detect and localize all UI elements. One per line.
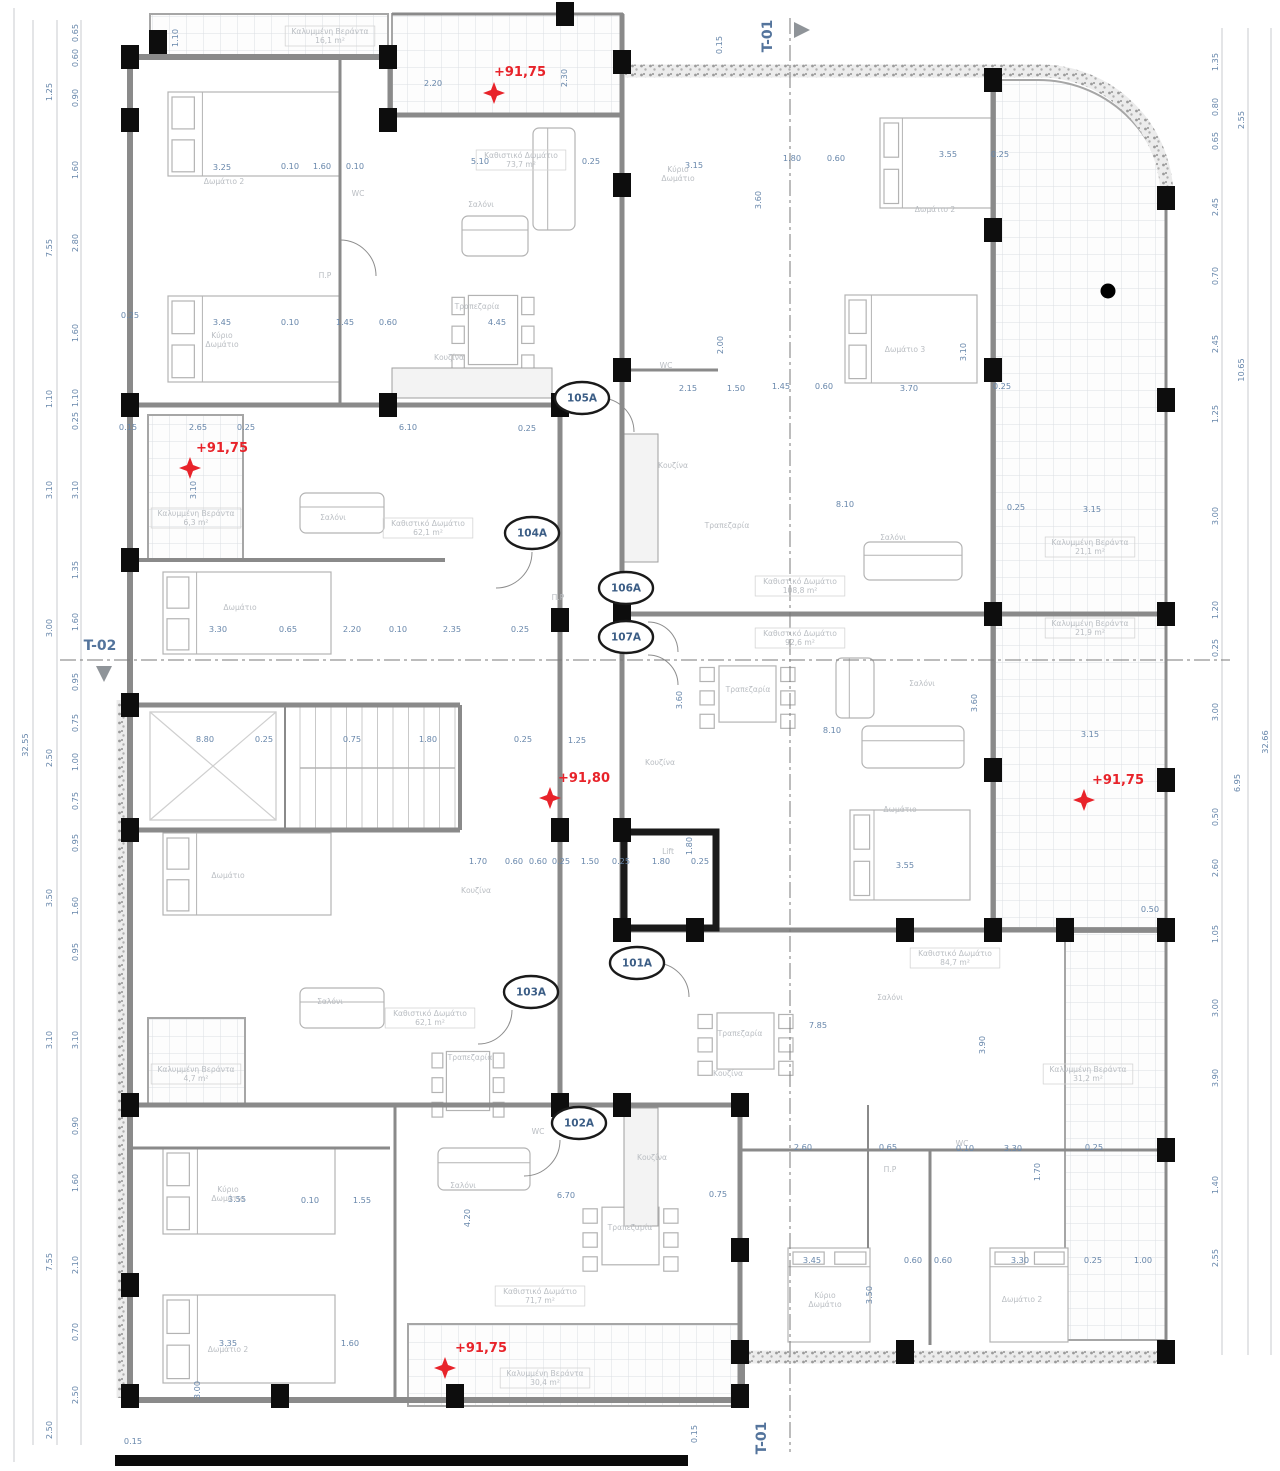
dimension-label: 1.25: [44, 83, 54, 101]
dimension-label: 1.00: [1134, 1255, 1152, 1265]
bed: [845, 295, 977, 383]
door-swing-arc: [496, 552, 532, 588]
dimension-label: 4.20: [462, 1209, 472, 1227]
dimension-label: 1.25: [568, 735, 586, 745]
unit-label: 107A: [611, 632, 642, 644]
dimension-label: 0.25: [121, 310, 139, 320]
dimension-label: 1.45: [772, 381, 790, 391]
structural-column: [984, 68, 1002, 92]
dimension-label: 2.15: [679, 383, 697, 393]
structural-column: [551, 818, 569, 842]
dimension-label: 32.66: [1260, 730, 1270, 753]
room-label: Καλυμμένη Βεράντα: [1049, 1065, 1126, 1074]
structural-column: [1157, 768, 1175, 792]
room-label: WC: [532, 1127, 545, 1136]
dimension-label: 1.70: [1032, 1163, 1042, 1181]
room-label: Τραπεζαρία: [607, 1223, 653, 1232]
dimension-label: 1.80: [783, 153, 801, 163]
dimension-label: 3.60: [674, 691, 684, 709]
structural-column: [984, 358, 1002, 382]
dimension-label: 0.70: [70, 1323, 80, 1341]
door-swing-arc: [340, 240, 376, 276]
structural-column: [984, 918, 1002, 942]
dimension-label: 2.45: [1210, 335, 1220, 353]
dimension-label: 1.60: [313, 161, 331, 171]
dimension-label: 0.60: [529, 856, 547, 866]
floor-plan-svg: 32.551.257.551.103.103.002.503.503.107.5…: [0, 0, 1280, 1471]
dimension-label: 0.25: [70, 412, 80, 430]
dimension-label: 0.95: [70, 673, 80, 691]
dimension-label: 6.95: [1232, 774, 1242, 792]
dimension-label: 0.25: [582, 156, 600, 166]
room-label: Δωμάτιο: [808, 1300, 842, 1309]
room-area-label: 21,9 m²: [1075, 628, 1105, 637]
dining-table: [700, 666, 795, 728]
structural-column: [896, 918, 914, 942]
unit-label: 103A: [516, 987, 547, 999]
dimension-label: 1.40: [1210, 1176, 1220, 1194]
room-label: Καλυμμένη Βεράντα: [157, 509, 234, 518]
structural-column: [271, 1384, 289, 1408]
dimension-label: 1.45: [336, 317, 354, 327]
room-label: Σαλόνι: [317, 997, 343, 1006]
dimension-label: 3.60: [753, 191, 763, 209]
dimension-label: 7.55: [44, 1253, 54, 1271]
room-label: Σαλόνι: [468, 200, 494, 209]
structural-column: [379, 45, 397, 69]
dimension-label: 1.80: [684, 837, 694, 855]
structural-column: [613, 50, 631, 74]
room-area-label: 6,3 m²: [184, 518, 209, 527]
room-area-label: 31,2 m²: [1073, 1074, 1103, 1083]
room-label: Δωμάτιο: [223, 603, 257, 612]
bed: [850, 810, 970, 900]
dimension-label: 3.15: [1081, 729, 1099, 739]
dimension-label: 7.85: [809, 1020, 827, 1030]
dimension-label: 3.10: [188, 481, 198, 499]
dimension-label: 0.50: [1210, 808, 1220, 826]
dimension-label: 0.10: [281, 161, 299, 171]
dimension-label: 2.60: [794, 1142, 812, 1152]
dimension-label: 2.80: [70, 234, 80, 252]
dimension-label: 0.90: [70, 89, 80, 107]
room-label: Καθιστικό Δωμάτιο: [484, 151, 558, 160]
elevation-label: +91,75: [196, 441, 248, 456]
dimension-label: 0.60: [379, 317, 397, 327]
sofa: [300, 988, 384, 1028]
room-label: Κουζίνα: [434, 353, 464, 362]
dimension-label: 0.60: [505, 856, 523, 866]
dimension-label: 32.55: [20, 733, 30, 756]
dimension-label: 0.75: [70, 714, 80, 732]
room-label: Τραπεζαρία: [717, 1029, 763, 1038]
dimension-label: 1.20: [1210, 601, 1220, 619]
structural-column: [121, 548, 139, 572]
dimension-label: 0.95: [70, 943, 80, 961]
dimension-label: 2.20: [424, 78, 442, 88]
dimension-label: 0.25: [518, 423, 536, 433]
structural-column: [121, 1093, 139, 1117]
dimension-label: 1.00: [70, 753, 80, 771]
room-label: Σαλόνι: [909, 679, 935, 688]
dimension-label: 2.60: [1210, 859, 1220, 877]
dimension-label: 1.50: [727, 383, 745, 393]
dimension-label: 1.35: [70, 561, 80, 579]
dimension-label: 2.55: [1236, 111, 1246, 129]
structural-column: [121, 693, 139, 717]
kitchen-counter: [624, 434, 658, 562]
room-label: Τραπεζαρία: [454, 302, 500, 311]
dimension-label: 0.25: [552, 856, 570, 866]
kitchen-counter: [624, 1108, 658, 1226]
dimension-label: 1.60: [70, 613, 80, 631]
room-label: Κύριο: [211, 331, 233, 340]
dimension-label: 1.50: [581, 856, 599, 866]
elevation-label: +91,80: [558, 771, 610, 786]
dimension-label: 0.90: [70, 1117, 80, 1135]
dimension-label: 7.55: [44, 239, 54, 257]
dimension-label: 1.35: [1210, 53, 1220, 71]
dimension-label: 3.00: [1210, 999, 1220, 1017]
dimension-label: 2.55: [1210, 1249, 1220, 1267]
structural-column: [613, 358, 631, 382]
structural-column: [1157, 388, 1175, 412]
dimension-label: 0.80: [1210, 98, 1220, 116]
room-label: WC: [352, 189, 365, 198]
dimension-label: 1.60: [341, 1338, 359, 1348]
dimension-label: 3.45: [213, 317, 231, 327]
dimension-label: 6.10: [399, 422, 417, 432]
structural-column: [446, 1384, 464, 1408]
structural-column: [613, 818, 631, 842]
dimension-label: 4.45: [488, 317, 506, 327]
dimension-label: 3.10: [70, 481, 80, 499]
sofa: [533, 128, 575, 230]
dimension-label: 3.10: [44, 1031, 54, 1049]
dimension-label: 3.45: [803, 1255, 821, 1265]
dimension-label: 1.70: [469, 856, 487, 866]
dimension-label: 0.25: [691, 856, 709, 866]
bed: [163, 1295, 335, 1383]
structural-column: [731, 1384, 749, 1408]
dimension-label: 3.90: [977, 1036, 987, 1054]
elevation-label: +91,75: [455, 1341, 507, 1356]
dimension-label: 0.60: [815, 381, 833, 391]
room-label: Κύριο: [814, 1291, 836, 1300]
bed: [880, 118, 992, 208]
veranda-grid: [392, 14, 623, 114]
title-block-bar: [115, 1455, 688, 1466]
room-label: Δωμάτιο 2: [915, 205, 956, 214]
dimension-label: 1.10: [170, 29, 180, 47]
structural-column: [1157, 1138, 1175, 1162]
section-label: T-01: [754, 1422, 770, 1455]
dimension-label: 2.50: [44, 1421, 54, 1439]
veranda-grid: [148, 1018, 245, 1104]
dimension-label: 3.00: [1210, 507, 1220, 525]
dimension-label: 0.25: [1085, 1142, 1103, 1152]
room-area-label: 16,1 m²: [315, 36, 345, 45]
room-area-label: 73,7 m²: [506, 160, 536, 169]
room-label: Δωμάτιο: [205, 340, 239, 349]
room-label: Κουζίνα: [713, 1069, 743, 1078]
structural-column: [1157, 186, 1175, 210]
dimension-label: 3.55: [939, 149, 957, 159]
dimension-label: 3.50: [44, 889, 54, 907]
room-area-label: 30,4 m²: [530, 1378, 560, 1387]
room-label: Π.P: [552, 593, 565, 602]
reference-dot: [1101, 284, 1116, 299]
room-label: Καθιστικό Δωμάτιο: [393, 1009, 467, 1018]
staircase: [300, 707, 455, 828]
structural-column: [1157, 918, 1175, 942]
room-label: Δωμάτιο: [211, 871, 245, 880]
room-label: Κύριο: [667, 165, 689, 174]
sofa: [462, 216, 528, 256]
dimension-label: 0.25: [612, 856, 630, 866]
room-label: Καθιστικό Δωμάτιο: [763, 629, 837, 638]
dimension-label: 6.70: [557, 1190, 575, 1200]
dimension-label: 0.65: [279, 624, 297, 634]
dimension-label: 0.25: [991, 149, 1009, 159]
dimension-label: 0.50: [1141, 904, 1159, 914]
room-label: Καθιστικό Δωμάτιο: [391, 519, 465, 528]
room-area-label: 62,1 m²: [413, 528, 443, 537]
dimension-label: 0.60: [904, 1255, 922, 1265]
structural-column: [379, 108, 397, 132]
room-label: Καλυμμένη Βεράντα: [291, 27, 368, 36]
dimension-label: 2.35: [443, 624, 461, 634]
light-well: [150, 712, 276, 820]
room-label: Καλυμμένη Βεράντα: [506, 1369, 583, 1378]
room-label: Δωμάτιο 3: [885, 345, 926, 354]
dimension-label: 1.60: [70, 324, 80, 342]
dimension-label: 3.30: [209, 624, 227, 634]
structural-column: [686, 918, 704, 942]
room-label: Καλυμμένη Βεράντα: [1051, 538, 1128, 547]
sofa: [864, 542, 962, 580]
room-label: WC: [956, 1139, 969, 1148]
room-label: Καθιστικό Δωμάτιο: [503, 1287, 577, 1296]
room-label: Π.P: [319, 271, 332, 280]
dimension-label: 0.15: [714, 36, 724, 54]
dimension-label: 0.70: [1210, 267, 1220, 285]
dimension-label: 0.10: [281, 317, 299, 327]
dimension-label: 0.60: [934, 1255, 952, 1265]
structural-column: [1056, 918, 1074, 942]
dimension-label: 0.25: [1210, 639, 1220, 657]
section-label: T-02: [84, 638, 117, 654]
structural-column: [551, 608, 569, 632]
sofa: [836, 658, 874, 718]
dimension-label: 2.30: [559, 69, 569, 87]
structural-column: [613, 1093, 631, 1117]
dimension-label: 0.25: [514, 734, 532, 744]
unit-label: 105A: [567, 393, 598, 405]
room-area-label: 62,1 m²: [415, 1018, 445, 1027]
structural-column: [121, 818, 139, 842]
room-label: Lift: [662, 847, 674, 856]
dimension-label: 0.15: [119, 422, 137, 432]
dimension-label: 0.10: [301, 1195, 319, 1205]
structural-column: [1157, 1340, 1175, 1364]
dimension-label: 1.60: [70, 1174, 80, 1192]
door-swing-arc: [478, 1010, 512, 1044]
room-label: Τραπεζαρία: [704, 521, 750, 530]
dimension-label: 3.10: [70, 1031, 80, 1049]
dimension-label: 0.65: [879, 1142, 897, 1152]
dimension-label: 1.80: [419, 734, 437, 744]
room-label: Καθιστικό Δωμάτιο: [918, 949, 992, 958]
structural-column: [896, 1340, 914, 1364]
bed: [163, 572, 331, 654]
dimension-label: 0.15: [124, 1436, 142, 1446]
elevation-label: +91,75: [1092, 773, 1144, 788]
structural-column: [121, 45, 139, 69]
structural-column: [731, 1238, 749, 1262]
section-arrow-icon: [794, 22, 810, 38]
room-label: Κουζίνα: [461, 886, 491, 895]
floor-plan-canvas: 32.551.257.551.103.103.002.503.503.107.5…: [0, 0, 1280, 1471]
dimension-label: 2.45: [1210, 198, 1220, 216]
dimension-label: 3.50: [864, 1286, 874, 1304]
room-area-label: 21,1 m²: [1075, 547, 1105, 556]
dimension-label: 2.50: [44, 749, 54, 767]
elevation-label: +91,75: [494, 65, 546, 80]
dimension-label: 2.20: [343, 624, 361, 634]
dimension-label: 3.30: [1004, 1143, 1022, 1153]
room-label: Π.P: [884, 1165, 897, 1174]
unit-label: 106A: [611, 583, 642, 595]
room-area-label: 108,8 m²: [783, 586, 818, 595]
section-label: T-01: [760, 20, 776, 53]
structural-column: [121, 108, 139, 132]
dimension-label: 3.90: [1210, 1069, 1220, 1087]
room-label: Σαλόνι: [450, 1181, 476, 1190]
dimension-label: 3.00: [192, 1381, 202, 1399]
unit-label: 102A: [564, 1118, 595, 1130]
dimension-label: 3.10: [44, 481, 54, 499]
dimension-label: 1.10: [44, 390, 54, 408]
dimension-label: 3.00: [44, 619, 54, 637]
room-area-label: 4,7 m²: [184, 1074, 209, 1083]
room-area-label: 84,7 m²: [940, 958, 970, 967]
dimension-label: 1.60: [70, 161, 80, 179]
dimension-label: 1.10: [70, 389, 80, 407]
structural-column: [1157, 602, 1175, 626]
dimension-label: 3.25: [213, 162, 231, 172]
dimension-label: 3.60: [969, 694, 979, 712]
bed: [168, 296, 340, 382]
room-area-label: 71,7 m²: [525, 1296, 555, 1305]
structural-column: [731, 1093, 749, 1117]
dimension-label: 0.10: [389, 624, 407, 634]
room-label: Τραπεζαρία: [725, 685, 771, 694]
room-label: Σαλόνι: [880, 533, 906, 542]
dimension-label: 0.60: [70, 49, 80, 67]
dimension-label: 0.25: [993, 381, 1011, 391]
room-label: Καλυμμένη Βεράντα: [157, 1065, 234, 1074]
dimension-label: 0.25: [1007, 502, 1025, 512]
structural-column: [984, 218, 1002, 242]
room-label: Κουζίνα: [658, 461, 688, 470]
dimension-label: 8.10: [836, 499, 854, 509]
dimension-label: 0.75: [70, 792, 80, 810]
structural-column: [984, 602, 1002, 626]
room-label: Καλυμμένη Βεράντα: [1051, 619, 1128, 628]
dimension-label: 8.80: [196, 734, 214, 744]
dimension-label: 3.55: [896, 860, 914, 870]
room-label: WC: [660, 361, 673, 370]
dimension-label: 0.65: [70, 24, 80, 42]
dimension-label: 3.10: [958, 343, 968, 361]
room-label: Σαλόνι: [877, 993, 903, 1002]
sofa: [862, 726, 964, 768]
dimension-label: 3.00: [1210, 703, 1220, 721]
dining-table: [698, 1013, 793, 1075]
bed: [163, 833, 331, 915]
dimension-label: 3.70: [900, 383, 918, 393]
bed: [163, 1148, 335, 1234]
section-arrow-icon: [96, 666, 112, 682]
room-label: Κουζίνα: [637, 1153, 667, 1162]
room-label: Δωμάτιο 2: [1002, 1295, 1043, 1304]
room-label: Τραπεζαρία: [447, 1053, 493, 1062]
dimension-label: 3.15: [1083, 504, 1101, 514]
structural-column: [379, 393, 397, 417]
structural-column: [556, 2, 574, 26]
dimension-label: 10.65: [1236, 358, 1246, 381]
dimension-label: 2.00: [715, 336, 725, 354]
structural-column: [731, 1340, 749, 1364]
dimension-label: 2.10: [70, 1256, 80, 1274]
room-label: Κουζίνα: [645, 758, 675, 767]
room-label: Κύριο: [217, 1185, 239, 1194]
dimension-label: 0.95: [70, 834, 80, 852]
dimension-label: 0.60: [827, 153, 845, 163]
dimension-label: 0.25: [511, 624, 529, 634]
room-label: Δωμάτιο: [211, 1194, 245, 1203]
dimension-label: 0.75: [343, 734, 361, 744]
room-label: Δωμάτιο 2: [208, 1345, 249, 1354]
room-label: Καθιστικό Δωμάτιο: [763, 577, 837, 586]
dimension-label: 0.25: [255, 734, 273, 744]
dimension-label: 2.65: [189, 422, 207, 432]
structural-column: [613, 173, 631, 197]
dimension-label: 1.80: [652, 856, 670, 866]
structural-column: [121, 393, 139, 417]
dimension-label: 1.25: [1210, 405, 1220, 423]
dimension-label: 0.25: [1084, 1255, 1102, 1265]
unit-label: 104A: [517, 528, 548, 540]
dimension-label: 0.25: [237, 422, 255, 432]
room-label: Δωμάτιο: [883, 805, 917, 814]
structural-column: [121, 1273, 139, 1297]
dimension-label: 2.50: [70, 1386, 80, 1404]
room-label: Δωμάτιο: [661, 174, 695, 183]
dimension-label: 8.10: [823, 725, 841, 735]
unit-label: 101A: [622, 958, 653, 970]
room-area-label: 92,6 m²: [785, 638, 815, 647]
dimension-label: 0.75: [709, 1189, 727, 1199]
veranda-grid: [1065, 932, 1166, 1340]
dimension-label: 1.55: [353, 1195, 371, 1205]
dimension-label: 0.10: [346, 161, 364, 171]
structural-column: [149, 30, 167, 54]
room-label: Σαλόνι: [320, 513, 346, 522]
dimension-label: 3.30: [1011, 1255, 1029, 1265]
dimension-label: 1.60: [70, 897, 80, 915]
